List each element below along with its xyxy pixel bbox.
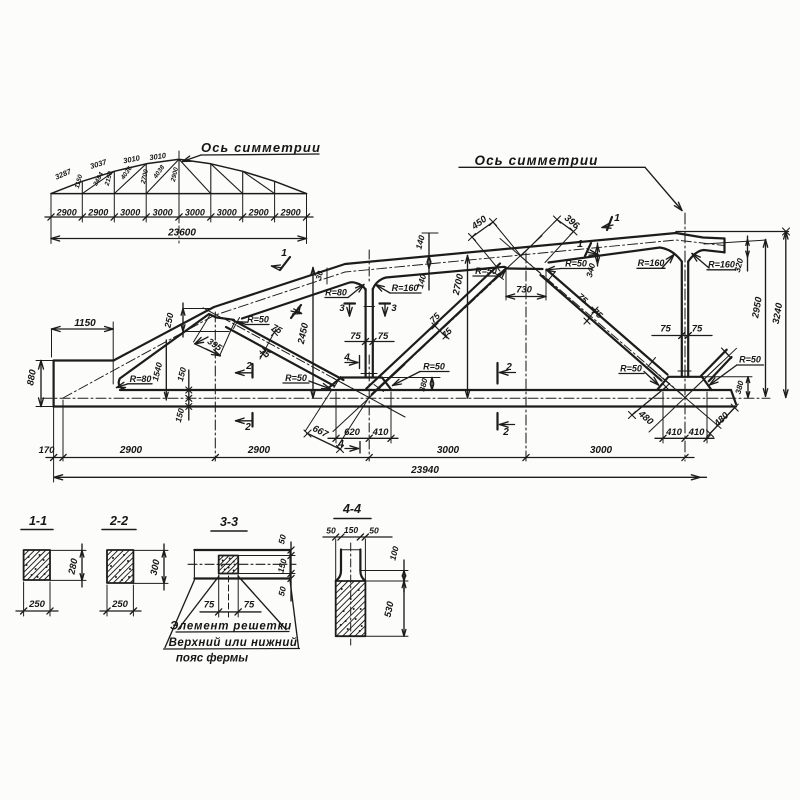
svg-text:150: 150 [276,557,289,573]
svg-text:3000: 3000 [185,208,205,218]
svg-text:2150: 2150 [104,170,115,187]
svg-text:280: 280 [66,557,80,576]
svg-text:R=50: R=50 [620,364,642,374]
svg-text:R=160: R=160 [708,260,735,270]
svg-text:2950: 2950 [750,296,765,320]
svg-text:140: 140 [414,234,427,250]
svg-text:50: 50 [369,526,379,536]
svg-text:R=160: R=160 [392,283,419,293]
svg-text:730: 730 [516,285,533,296]
svg-text:3-3: 3-3 [220,515,238,529]
svg-text:667: 667 [311,423,331,440]
svg-text:2900: 2900 [247,445,271,456]
svg-text:Ось симметрии: Ось симметрии [474,153,598,168]
svg-text:R=50: R=50 [285,373,307,383]
svg-text:R=50: R=50 [475,266,497,276]
svg-text:2700: 2700 [451,272,467,297]
svg-text:340: 340 [584,262,597,278]
svg-text:4038: 4038 [152,164,167,181]
svg-text:140: 140 [415,273,428,289]
svg-text:75: 75 [575,291,590,306]
svg-text:300: 300 [149,558,163,576]
svg-text:880: 880 [25,368,39,386]
svg-text:2900: 2900 [56,208,77,218]
svg-text:2: 2 [505,362,512,373]
svg-text:410: 410 [372,427,390,438]
svg-text:250: 250 [111,599,129,610]
svg-text:3000: 3000 [153,208,173,218]
svg-text:75: 75 [204,600,215,611]
svg-text:23600: 23600 [167,228,196,239]
svg-text:2700: 2700 [140,168,150,185]
svg-text:1: 1 [577,238,583,250]
svg-text:2-2: 2-2 [109,514,128,528]
svg-text:410: 410 [665,427,683,438]
svg-text:3010: 3010 [122,153,141,165]
svg-text:2900: 2900 [280,208,301,218]
svg-text:250: 250 [162,312,175,330]
svg-text:250: 250 [28,599,46,610]
svg-text:Элемент решетки: Элемент решетки [170,621,292,633]
svg-text:2: 2 [244,422,251,433]
svg-text:410: 410 [688,427,706,438]
svg-text:R=80: R=80 [325,288,347,298]
svg-text:23940: 23940 [410,465,439,476]
svg-text:2: 2 [502,427,509,438]
svg-text:R=50: R=50 [739,355,761,365]
svg-text:75: 75 [660,324,671,335]
svg-text:480: 480 [635,408,655,428]
svg-text:2900: 2900 [87,208,108,218]
svg-text:50: 50 [276,533,288,545]
svg-text:3037: 3037 [89,157,108,171]
svg-text:100: 100 [388,545,401,561]
svg-text:75: 75 [350,331,361,342]
svg-text:396: 396 [562,213,582,232]
svg-text:R=50: R=50 [247,315,269,325]
svg-text:R=80: R=80 [130,374,152,384]
svg-text:4-4: 4-4 [342,502,361,516]
svg-text:150: 150 [175,366,188,382]
svg-text:3240: 3240 [771,302,786,325]
svg-text:1: 1 [281,247,287,259]
svg-text:3: 3 [391,303,397,314]
svg-text:R=160: R=160 [638,258,665,268]
svg-text:3000: 3000 [437,445,460,456]
svg-text:3000: 3000 [590,445,613,456]
svg-text:450: 450 [469,213,490,232]
svg-text:4: 4 [337,439,344,450]
svg-text:пояс фермы: пояс фермы [176,653,248,665]
svg-text:1150: 1150 [74,318,96,329]
svg-text:Ось симметрии: Ось симметрии [201,140,321,155]
svg-text:2: 2 [245,361,252,372]
svg-text:75: 75 [378,331,389,342]
svg-text:75: 75 [244,600,255,611]
svg-text:1540: 1540 [150,361,164,382]
svg-text:1: 1 [614,212,620,224]
svg-text:2900: 2900 [119,445,143,456]
svg-text:2450: 2450 [296,321,312,346]
svg-text:2900: 2900 [248,208,269,218]
svg-text:R=50: R=50 [565,259,587,269]
svg-text:380: 380 [734,379,746,395]
svg-text:3010: 3010 [149,151,168,162]
svg-text:3: 3 [339,303,345,314]
svg-text:150: 150 [173,407,186,423]
svg-text:50: 50 [276,585,288,597]
svg-text:3287: 3287 [54,166,74,181]
svg-text:Верхний или нижний: Верхний или нижний [169,637,298,649]
svg-text:480: 480 [712,410,732,430]
svg-text:50: 50 [326,526,336,536]
svg-text:530: 530 [383,600,397,618]
svg-text:1-1: 1-1 [29,514,47,528]
svg-text:3000: 3000 [120,208,140,218]
svg-text:75: 75 [428,310,443,325]
svg-text:150: 150 [344,525,358,535]
svg-text:75: 75 [692,324,703,335]
svg-text:170: 170 [39,445,56,456]
svg-text:R=50: R=50 [423,362,445,372]
svg-text:3000: 3000 [217,208,237,218]
svg-text:320: 320 [732,257,745,273]
